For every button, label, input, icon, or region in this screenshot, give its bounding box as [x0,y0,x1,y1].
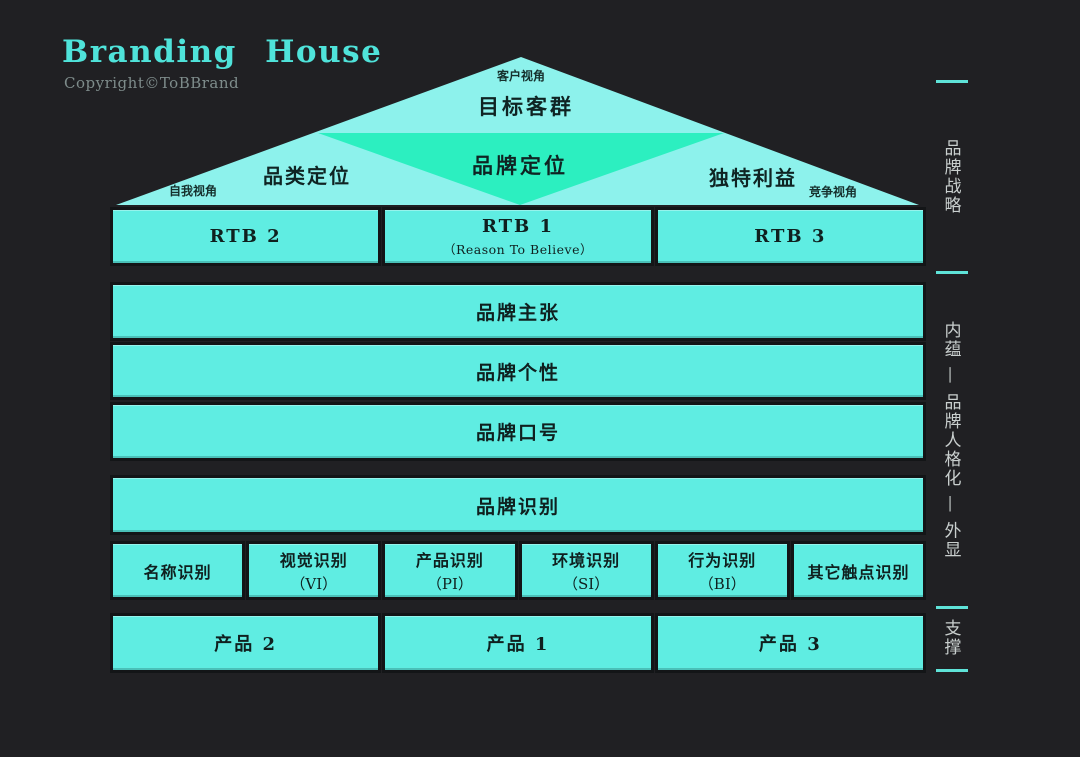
visual-identity-label: 视觉识别 [280,547,348,571]
roof-unique-benefit-label: 独特利益 [709,162,797,191]
roof-brand-positioning-label: 品牌定位 [472,150,568,180]
product2-box: 产品 2 [113,616,378,670]
product-identity-abbr: （PI） [427,573,473,594]
roof-competition-view-note: 竞争视角 [809,183,857,200]
product3-label: 产品 3 [759,630,822,656]
product-row: 产品 2 产品 1 产品 3 [113,616,923,670]
rtb1-box: RTB 1 （Reason To Believe） [385,210,650,263]
branding-house-diagram: Branding House Copyright©ToBBrand 客户视角 目… [0,0,1080,757]
sidebar-dash-4 [936,669,968,672]
brand-slogan-label: 品牌口号 [476,418,560,445]
rtb1-label: RTB 1 [482,216,554,237]
brand-identity-box: 品牌识别 [113,478,923,532]
other-touchpoint-identity-label: 其它触点识别 [807,559,909,583]
sidebar-brand-strategy-label: 品牌战略 [933,86,969,268]
brand-personality-label: 品牌个性 [476,358,560,385]
roof-self-view-note: 自我视角 [169,182,217,199]
sidebar-dash-2 [936,271,968,274]
product1-box: 产品 1 [385,616,650,670]
brand-proposition-label: 品牌主张 [476,298,560,325]
product1-label: 产品 1 [487,630,550,656]
behavior-identity-box: 行为识别 （BI） [658,544,787,597]
brand-identity-row: 品牌识别 [113,478,923,532]
brand-slogan-row: 品牌口号 [113,405,923,458]
brand-personality-row: 品牌个性 [113,345,923,397]
sidebar-support-label: 支撑 [933,609,969,667]
sidebar-dash-1 [936,80,968,83]
roof-apex-note: 客户视角 [497,67,545,84]
roof-target-customers-label: 目标客群 [478,91,574,121]
brand-proposition-box: 品牌主张 [113,285,923,338]
environment-identity-abbr: （SI） [563,573,609,594]
product-identity-label: 产品识别 [416,547,484,571]
product3-box: 产品 3 [658,616,923,670]
rtb-row: RTB 2 RTB 1 （Reason To Believe） RTB 3 [113,210,923,263]
brand-proposition-row: 品牌主张 [113,285,923,338]
brand-personality-box: 品牌个性 [113,345,923,397]
visual-identity-abbr: （VI） [290,573,337,594]
brand-slogan-box: 品牌口号 [113,405,923,458]
name-identity-label: 名称识别 [144,559,212,583]
rtb2-label: RTB 2 [210,226,282,247]
environment-identity-label: 环境识别 [552,547,620,571]
rtb1-sublabel: （Reason To Believe） [443,239,593,258]
rtb3-label: RTB 3 [754,226,826,247]
product-identity-box: 产品识别 （PI） [385,544,514,597]
other-touchpoint-identity-box: 其它触点识别 [794,544,923,597]
name-identity-box: 名称识别 [113,544,242,597]
brand-identity-label: 品牌识别 [476,492,560,519]
rtb2-box: RTB 2 [113,210,378,263]
visual-identity-box: 视觉识别 （VI） [249,544,378,597]
product2-label: 产品 2 [214,630,277,656]
roof-category-positioning-label: 品类定位 [263,160,351,189]
sidebar-personification-label: 内蕴 — 品牌人格化 — 外显 [933,277,969,603]
identity-types-row: 名称识别 视觉识别 （VI） 产品识别 （PI） 环境识别 （SI） 行为识别 … [113,544,923,597]
behavior-identity-abbr: （BI） [699,573,746,594]
rtb3-box: RTB 3 [658,210,923,263]
environment-identity-box: 环境识别 （SI） [522,544,651,597]
behavior-identity-label: 行为识别 [688,547,756,571]
